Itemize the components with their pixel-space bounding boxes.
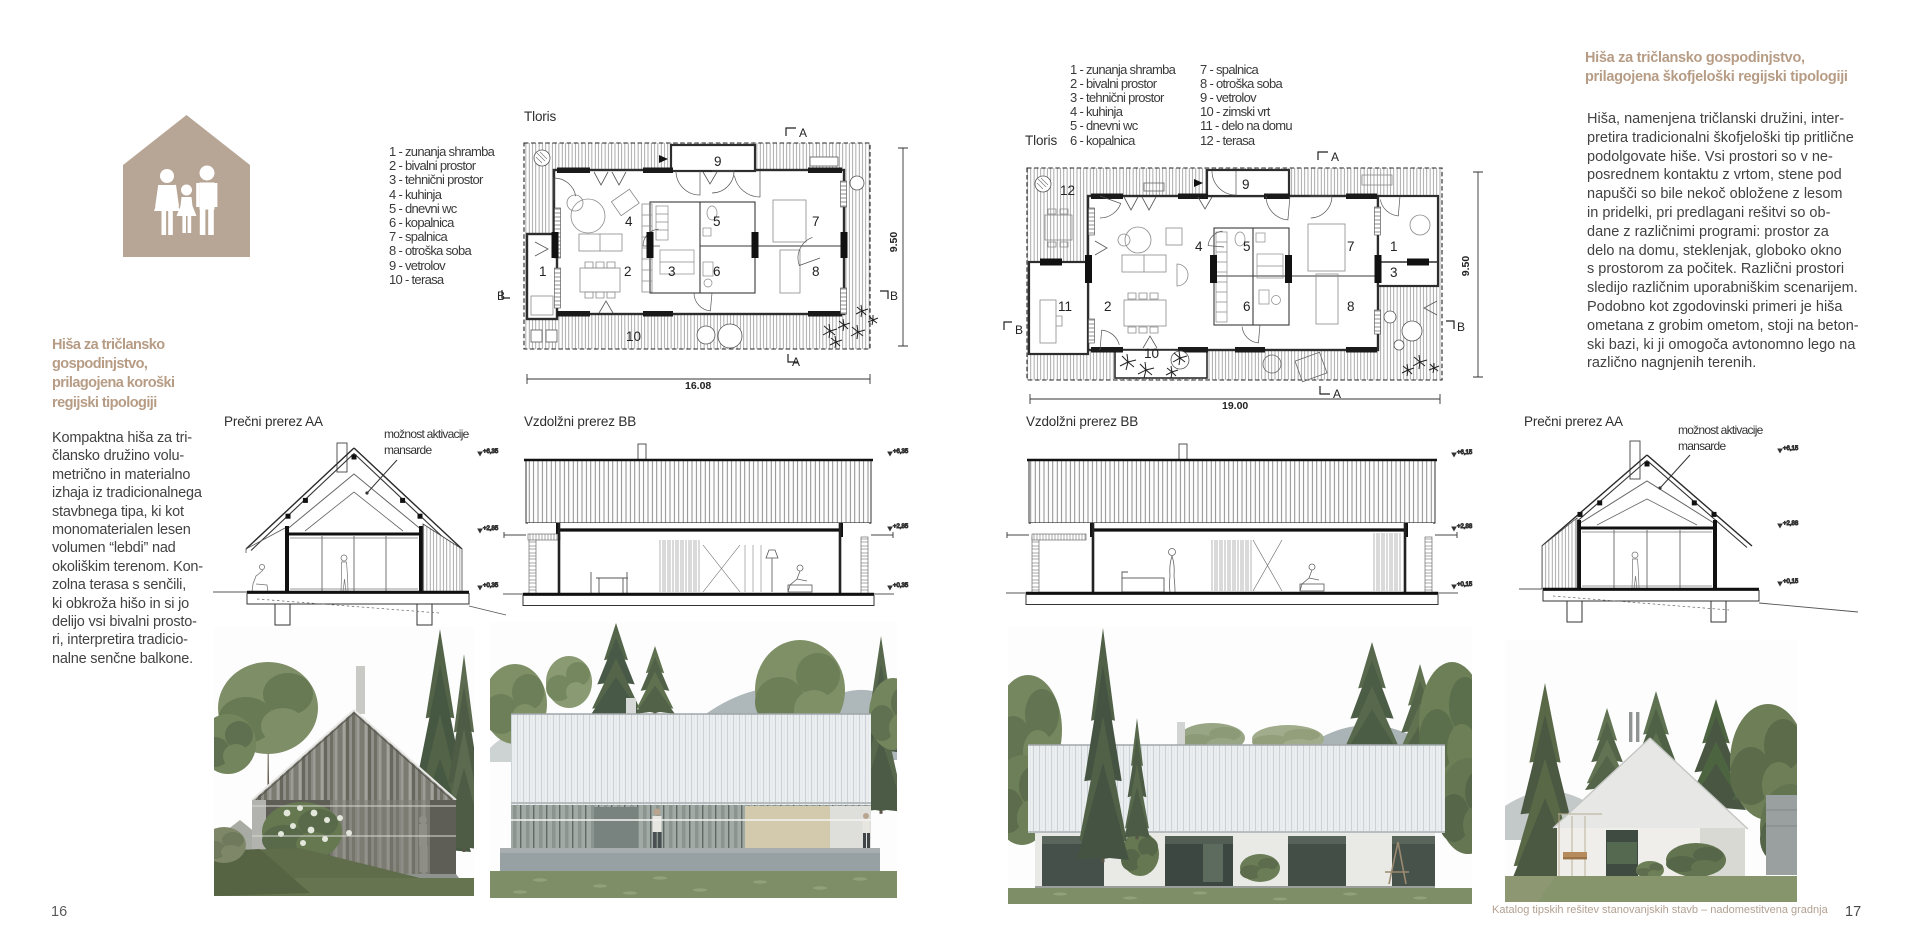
svg-text:6: 6 <box>1243 299 1251 314</box>
svg-text:10: 10 <box>1144 346 1159 361</box>
svg-text:+0,35: +0,35 <box>483 583 499 589</box>
svg-text:8: 8 <box>1347 299 1355 314</box>
svg-text:7: 7 <box>812 214 820 229</box>
svg-text:2: 2 <box>624 264 632 279</box>
svg-text:B: B <box>1015 323 1023 337</box>
svg-text:6: 6 <box>713 264 721 279</box>
svg-text:A: A <box>792 355 800 369</box>
svg-text:A: A <box>1331 150 1339 164</box>
svg-text:9.50: 9.50 <box>888 232 900 253</box>
svg-text:16.08: 16.08 <box>685 380 711 392</box>
svg-text:+2,88: +2,88 <box>1457 524 1473 530</box>
svg-text:9.50: 9.50 <box>1460 256 1472 277</box>
svg-text:12: 12 <box>1060 183 1075 198</box>
svg-text:9: 9 <box>714 154 722 169</box>
svg-text:9: 9 <box>1242 177 1250 192</box>
svg-text:10: 10 <box>626 329 641 344</box>
svg-text:+6,35: +6,35 <box>893 449 909 455</box>
svg-text:5: 5 <box>1243 239 1251 254</box>
svg-text:19.00: 19.00 <box>1222 400 1248 412</box>
svg-text:A: A <box>799 126 807 140</box>
svg-text:1: 1 <box>1390 239 1398 254</box>
svg-text:2: 2 <box>1104 299 1112 314</box>
svg-text:+2,85: +2,85 <box>483 526 499 532</box>
svg-text:+0,35: +0,35 <box>893 583 909 589</box>
svg-text:+6,15: +6,15 <box>1457 450 1473 456</box>
svg-text:8: 8 <box>812 264 820 279</box>
svg-text:3: 3 <box>1390 265 1398 280</box>
svg-text:+0,15: +0,15 <box>1783 579 1799 585</box>
svg-text:+2,85: +2,85 <box>893 524 909 530</box>
svg-text:7: 7 <box>1347 239 1355 254</box>
svg-text:1: 1 <box>539 264 547 279</box>
svg-text:A: A <box>1333 387 1341 401</box>
svg-text:11: 11 <box>1058 299 1072 314</box>
svg-text:+6,35: +6,35 <box>483 449 499 455</box>
svg-text:5: 5 <box>713 214 721 229</box>
svg-text:B: B <box>890 289 898 303</box>
svg-text:B: B <box>497 289 505 303</box>
svg-text:4: 4 <box>1195 239 1203 254</box>
svg-text:+2,88: +2,88 <box>1783 521 1799 527</box>
svg-text:3: 3 <box>668 264 676 279</box>
svg-text:+6,15: +6,15 <box>1783 446 1799 452</box>
svg-text:4: 4 <box>625 214 633 229</box>
svg-text:B: B <box>1457 320 1465 334</box>
svg-text:+0,15: +0,15 <box>1457 582 1473 588</box>
